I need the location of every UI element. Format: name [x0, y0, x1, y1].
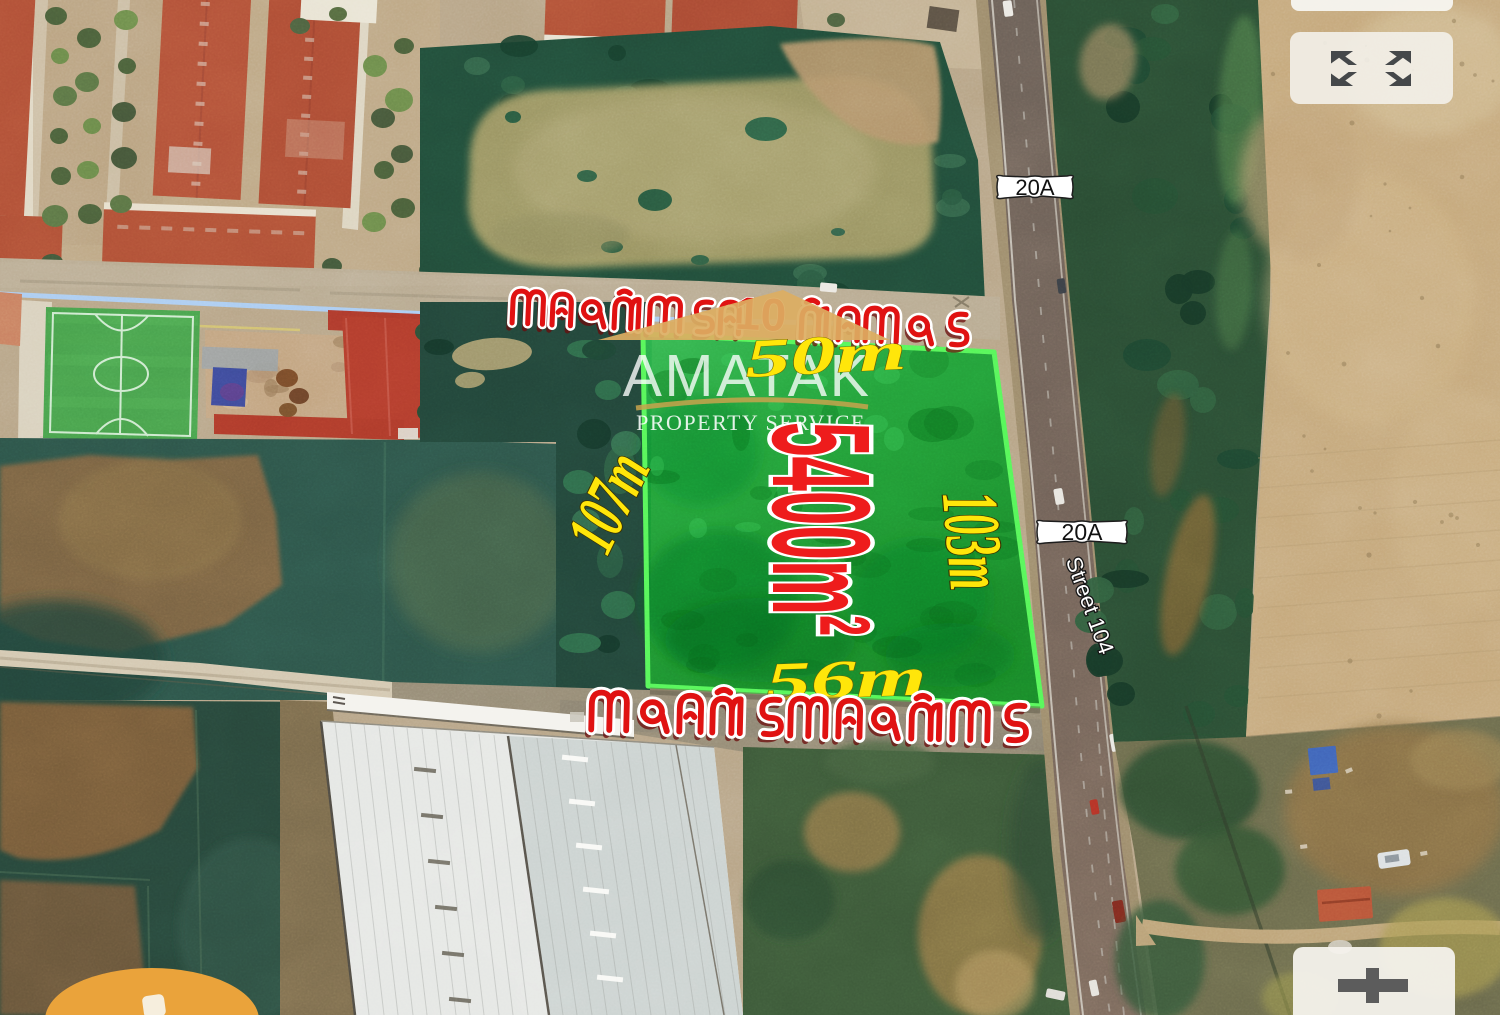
svg-text:5400m²: 5400m² — [743, 422, 899, 636]
svg-text:103m: 103m — [925, 488, 1022, 593]
svg-text:50m: 50m — [744, 321, 908, 389]
svg-text:20A: 20A — [1062, 519, 1104, 545]
svg-text:20A: 20A — [1015, 175, 1054, 200]
